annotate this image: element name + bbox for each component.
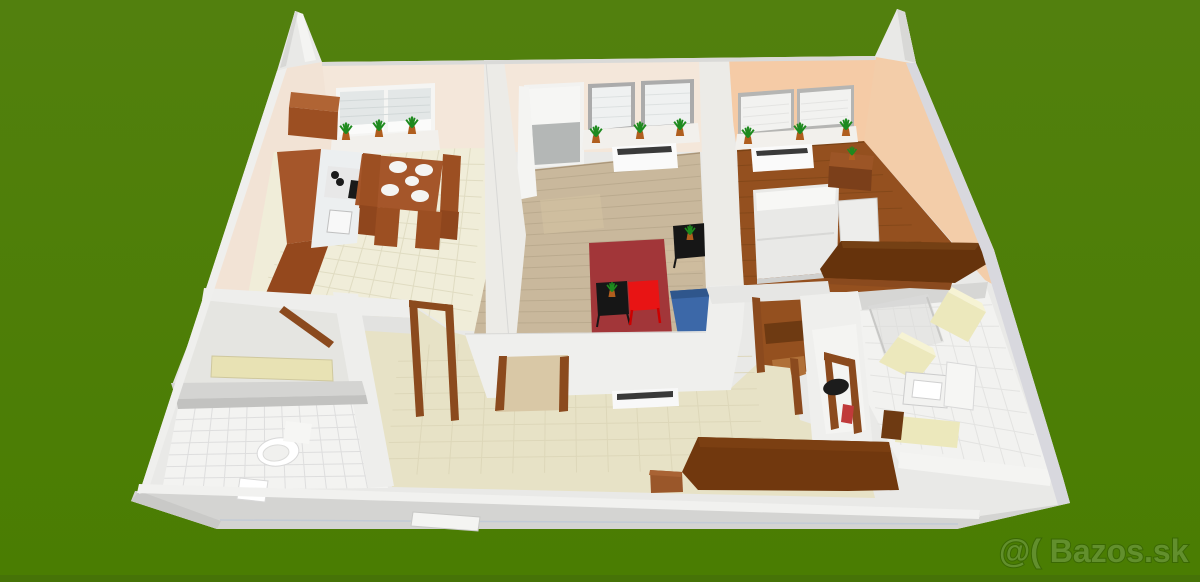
svg-text:@( Bazos.sk: @( Bazos.sk [999, 533, 1189, 569]
